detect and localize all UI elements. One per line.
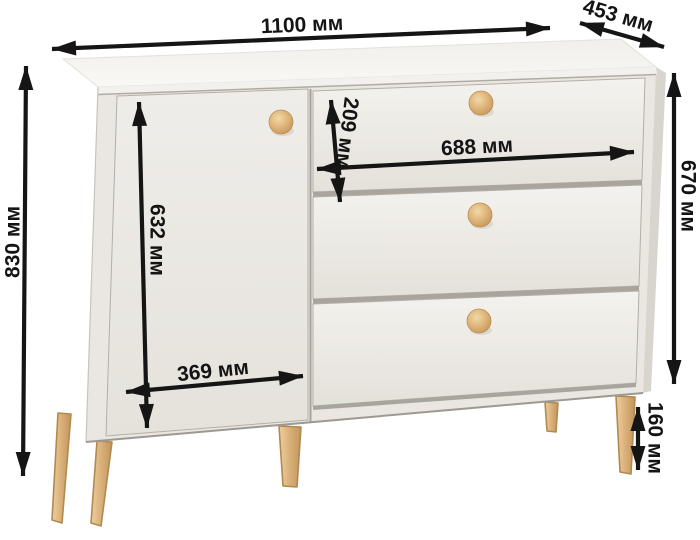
label-depth: 453 мм [580,0,656,37]
leg-front-left [91,441,112,526]
dimension-diagram: 1100 мм 453 мм 830 мм 670 мм 632 мм 209 … [0,0,700,540]
drawer-2-knob [468,203,492,227]
drawer-1-knob [469,91,493,115]
label-overall-height: 830 мм [2,206,25,278]
leg-middle [279,426,301,487]
leg-front-right [616,396,635,474]
label-leg-height: 160 мм [644,402,667,474]
diagram-canvas: 1100 мм 453 мм 830 мм 670 мм 632 мм 209 … [0,0,700,540]
leg-back-right [545,402,558,432]
label-overall-width: 1100 мм [260,12,343,39]
label-door-height: 632 мм [146,204,169,276]
leg-back-left [52,413,71,523]
drawer-front-2 [313,185,642,299]
label-body-height: 670 мм [677,160,700,232]
drawer-3-knob [467,309,491,333]
door-knob [269,110,293,134]
label-drawer-front-width: 688 мм [440,134,513,161]
